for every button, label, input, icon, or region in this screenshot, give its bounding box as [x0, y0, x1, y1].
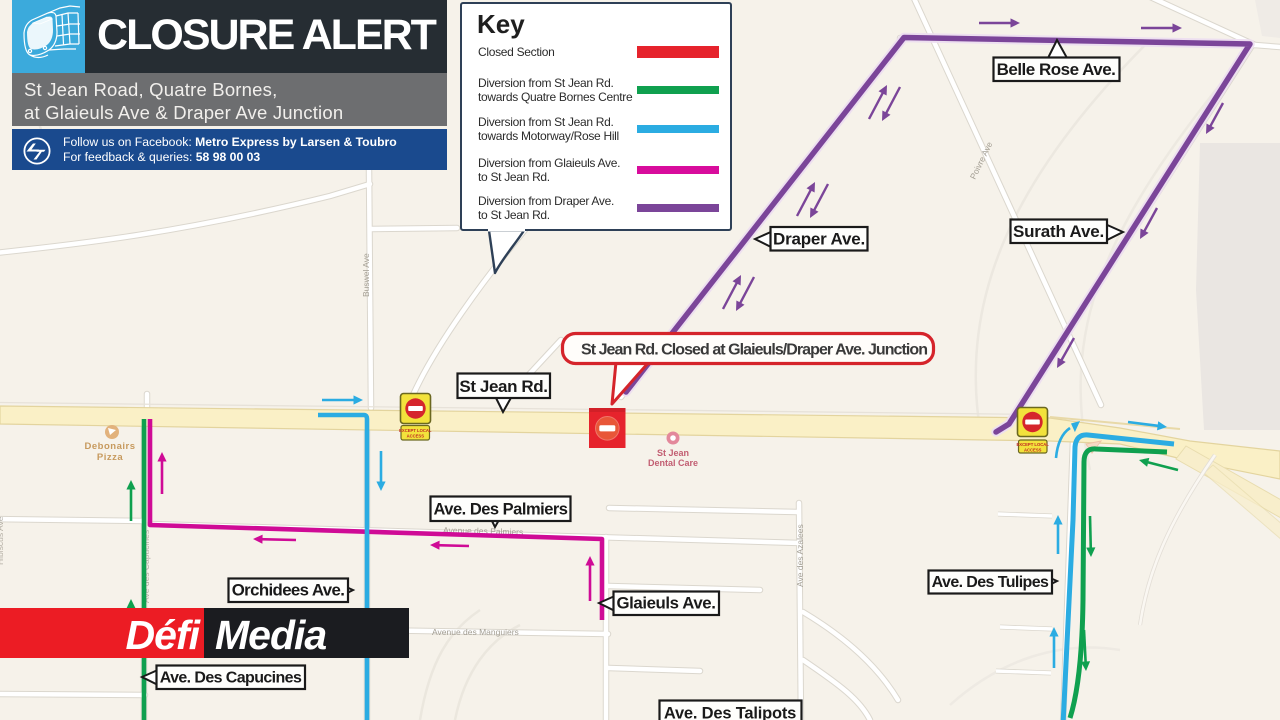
svg-text:Ave. Des Talipots: Ave. Des Talipots [664, 705, 796, 720]
svg-text:Orchidees Ave.: Orchidees Ave. [232, 581, 345, 600]
svg-text:Ave. Des Capucines: Ave. Des Capucines [160, 670, 302, 687]
svg-text:Glaieuls Ave.: Glaieuls Ave. [617, 594, 716, 613]
svg-text:EXCEPT LOCAL: EXCEPT LOCAL [399, 428, 432, 433]
svg-text:ACCESS: ACCESS [1024, 447, 1042, 452]
svg-text:Pizza: Pizza [97, 452, 123, 463]
svg-text:Draper Ave.: Draper Ave. [773, 230, 865, 249]
svg-text:ACCESS: ACCESS [407, 434, 425, 439]
svg-text:Ave. Des Tulipes: Ave. Des Tulipes [932, 574, 1049, 591]
svg-text:Buswel Ave: Buswel Ave [361, 253, 371, 297]
svg-text:St Jean Rd. Closed at Glaieuls: St Jean Rd. Closed at Glaieuls/Draper Av… [581, 342, 927, 359]
svg-text:EXCEPT LOCAL: EXCEPT LOCAL [1017, 442, 1050, 447]
svg-text:Ave des Azalees: Ave des Azalees [795, 524, 805, 587]
svg-text:Avenue des Manguiers: Avenue des Manguiers [432, 627, 519, 637]
svg-text:Belle Rose Ave.: Belle Rose Ave. [997, 60, 1116, 79]
svg-text:Ave. Des Palmiers: Ave. Des Palmiers [434, 501, 568, 519]
svg-text:Surath Ave.: Surath Ave. [1013, 222, 1104, 241]
svg-text:St Jean: St Jean [657, 448, 689, 458]
svg-text:Debonairs: Debonairs [85, 441, 136, 452]
svg-text:St Jean Rd.: St Jean Rd. [459, 377, 547, 396]
svg-text:Dental Care: Dental Care [648, 458, 698, 468]
svg-text:Hibiscus Ave: Hibiscus Ave [0, 516, 5, 565]
